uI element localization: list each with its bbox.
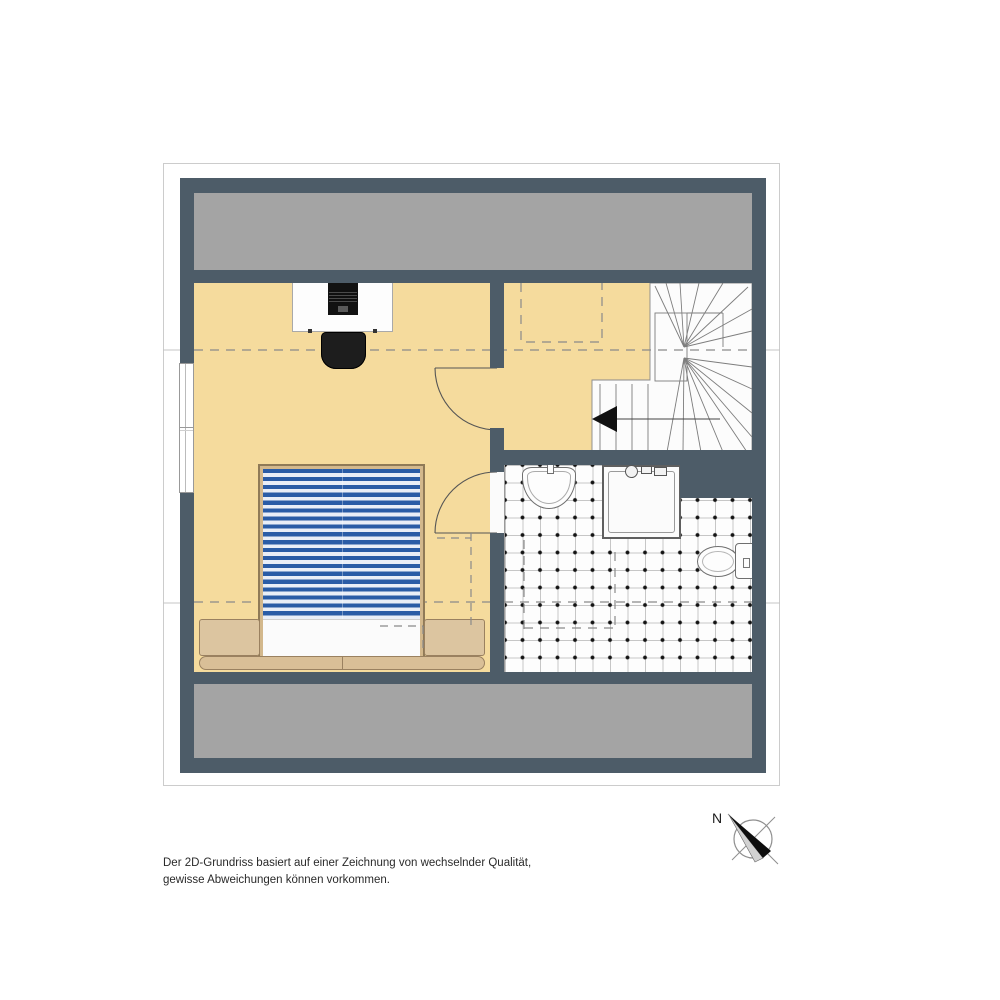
disclaimer: Der 2D-Grundriss basiert auf einer Zeich… (163, 855, 643, 889)
disclaimer-line-2: gewisse Abweichungen können vorkommen. (163, 872, 643, 889)
door-clearance-dashes (380, 533, 471, 648)
disclaimer-line-1: Der 2D-Grundriss basiert auf einer Zeich… (163, 855, 643, 872)
compass-north-label: N (712, 810, 722, 826)
floor-plan-page: N Der 2D-Grundriss basiert auf einer Zei… (0, 0, 1000, 1000)
overlay-layer: N (0, 0, 1000, 1000)
compass-icon: N (712, 810, 778, 864)
